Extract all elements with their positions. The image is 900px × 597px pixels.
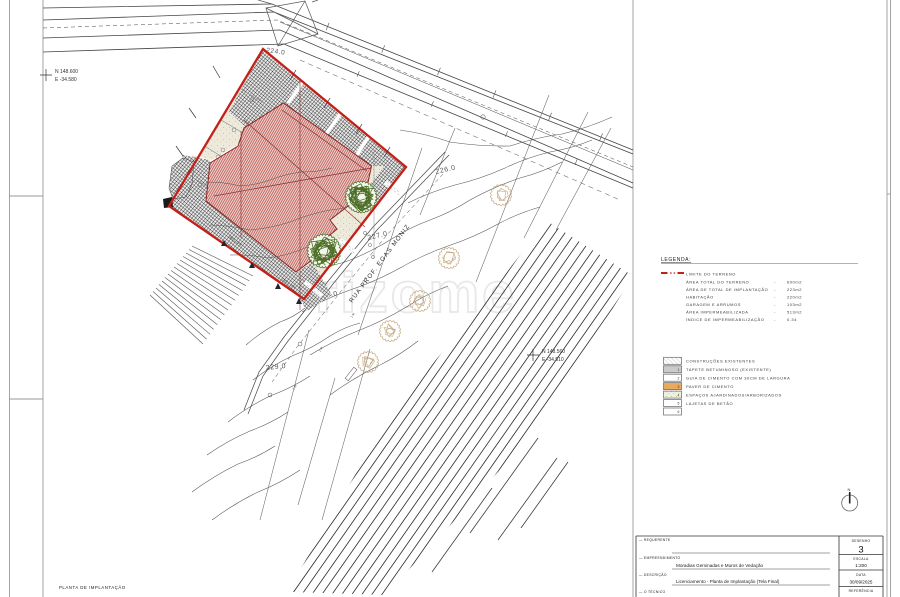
svg-text:3: 3 (858, 545, 863, 556)
svg-text:— EMPREENDIMENTO: — EMPREENDIMENTO (639, 556, 681, 560)
svg-text:ÁREA TOTAL DO TERRENO: ÁREA TOTAL DO TERRENO (686, 280, 749, 285)
svg-text:— DESCRIÇÃO: — DESCRIÇÃO (639, 572, 667, 577)
svg-text:ÁREA DE TOTAL DE IMPLANTAÇÃO: ÁREA DE TOTAL DE IMPLANTAÇÃO (686, 287, 768, 292)
svg-text:E -34.510: E -34.510 (542, 357, 564, 363)
svg-text:103m2: 103m2 (787, 302, 802, 307)
svg-text:600m2: 600m2 (787, 280, 802, 285)
svg-text:ÁREA IMPERMEABILIZADA: ÁREA IMPERMEABILIZADA (686, 310, 748, 315)
svg-text:PAVER DE CIMENTO: PAVER DE CIMENTO (686, 384, 734, 389)
svg-text:N 148.560: N 148.560 (542, 349, 565, 355)
svg-text:4: 4 (678, 393, 680, 397)
svg-text:-: - (774, 295, 776, 300)
svg-text:-: - (774, 310, 776, 315)
svg-text:Moradias Geminadas e Muros de: Moradias Geminadas e Muros de Vedação (676, 563, 764, 568)
svg-text:1: 1 (678, 368, 680, 372)
svg-text:30/09/2025: 30/09/2025 (850, 580, 873, 585)
svg-text:3: 3 (678, 385, 680, 389)
svg-text:REFERÊNCIA: REFERÊNCIA (849, 588, 874, 593)
svg-text:N: N (848, 487, 851, 492)
svg-text:GUIA DE CIMENTO COM 30CM DE LA: GUIA DE CIMENTO COM 30CM DE LARGURA (686, 376, 790, 381)
svg-text:2: 2 (678, 376, 680, 380)
svg-text:-: - (774, 317, 776, 322)
svg-text:220m2: 220m2 (787, 295, 802, 300)
svg-text:N 148.600: N 148.600 (55, 69, 78, 75)
svg-text:-: - (774, 302, 776, 307)
svg-text:DATA: DATA (856, 573, 866, 577)
svg-text:0.34: 0.34 (787, 317, 797, 322)
svg-text:CONSTRUÇÕES EXISTENTES: CONSTRUÇÕES EXISTENTES (686, 359, 755, 364)
svg-text:TAPETE BETUMINOSO (EXISTENTE): TAPETE BETUMINOSO (EXISTENTE) (686, 367, 771, 372)
svg-text:LEGENDA:: LEGENDA: (661, 257, 691, 263)
svg-text:E -34.580: E -34.580 (55, 77, 77, 83)
svg-text:Licenciamento - Planta de Impl: Licenciamento - Planta de Implantação (T… (676, 579, 780, 584)
svg-text:PLANTA DE IMPLANTAÇÃO: PLANTA DE IMPLANTAÇÃO (59, 585, 126, 590)
svg-text:5: 5 (678, 402, 680, 406)
svg-text:DESENHO: DESENHO (852, 539, 871, 543)
svg-text:— O TÉCNICO: — O TÉCNICO (639, 589, 665, 594)
svg-text:223m2: 223m2 (787, 287, 802, 292)
svg-text:LAJETAS DE BETÃO: LAJETAS DE BETÃO (686, 401, 733, 406)
svg-text:ESPAÇOS AJARDINADOS/ARBORIZADO: ESPAÇOS AJARDINADOS/ARBORIZADOS (686, 393, 782, 398)
svg-text:ESCALA: ESCALA (853, 557, 869, 561)
svg-text:ÍNDICE DE IMPERMEABILIZAÇÃO: ÍNDICE DE IMPERMEABILIZAÇÃO (686, 317, 764, 322)
svg-text:-: - (774, 280, 776, 285)
svg-text:GARAGEM E ARRUMOS: GARAGEM E ARRUMOS (686, 302, 741, 307)
svg-text:1:200: 1:200 (855, 563, 867, 568)
svg-text:rizome: rizome (315, 261, 517, 325)
svg-text:6: 6 (678, 410, 680, 414)
svg-text:-: - (774, 287, 776, 292)
svg-text:HABITAÇÃO: HABITAÇÃO (686, 295, 714, 300)
svg-text:— REQUERENTE: — REQUERENTE (639, 538, 671, 542)
svg-text:513m2: 513m2 (787, 310, 802, 315)
svg-text:LIMITE DO TERRENO: LIMITE DO TERRENO (686, 272, 736, 277)
